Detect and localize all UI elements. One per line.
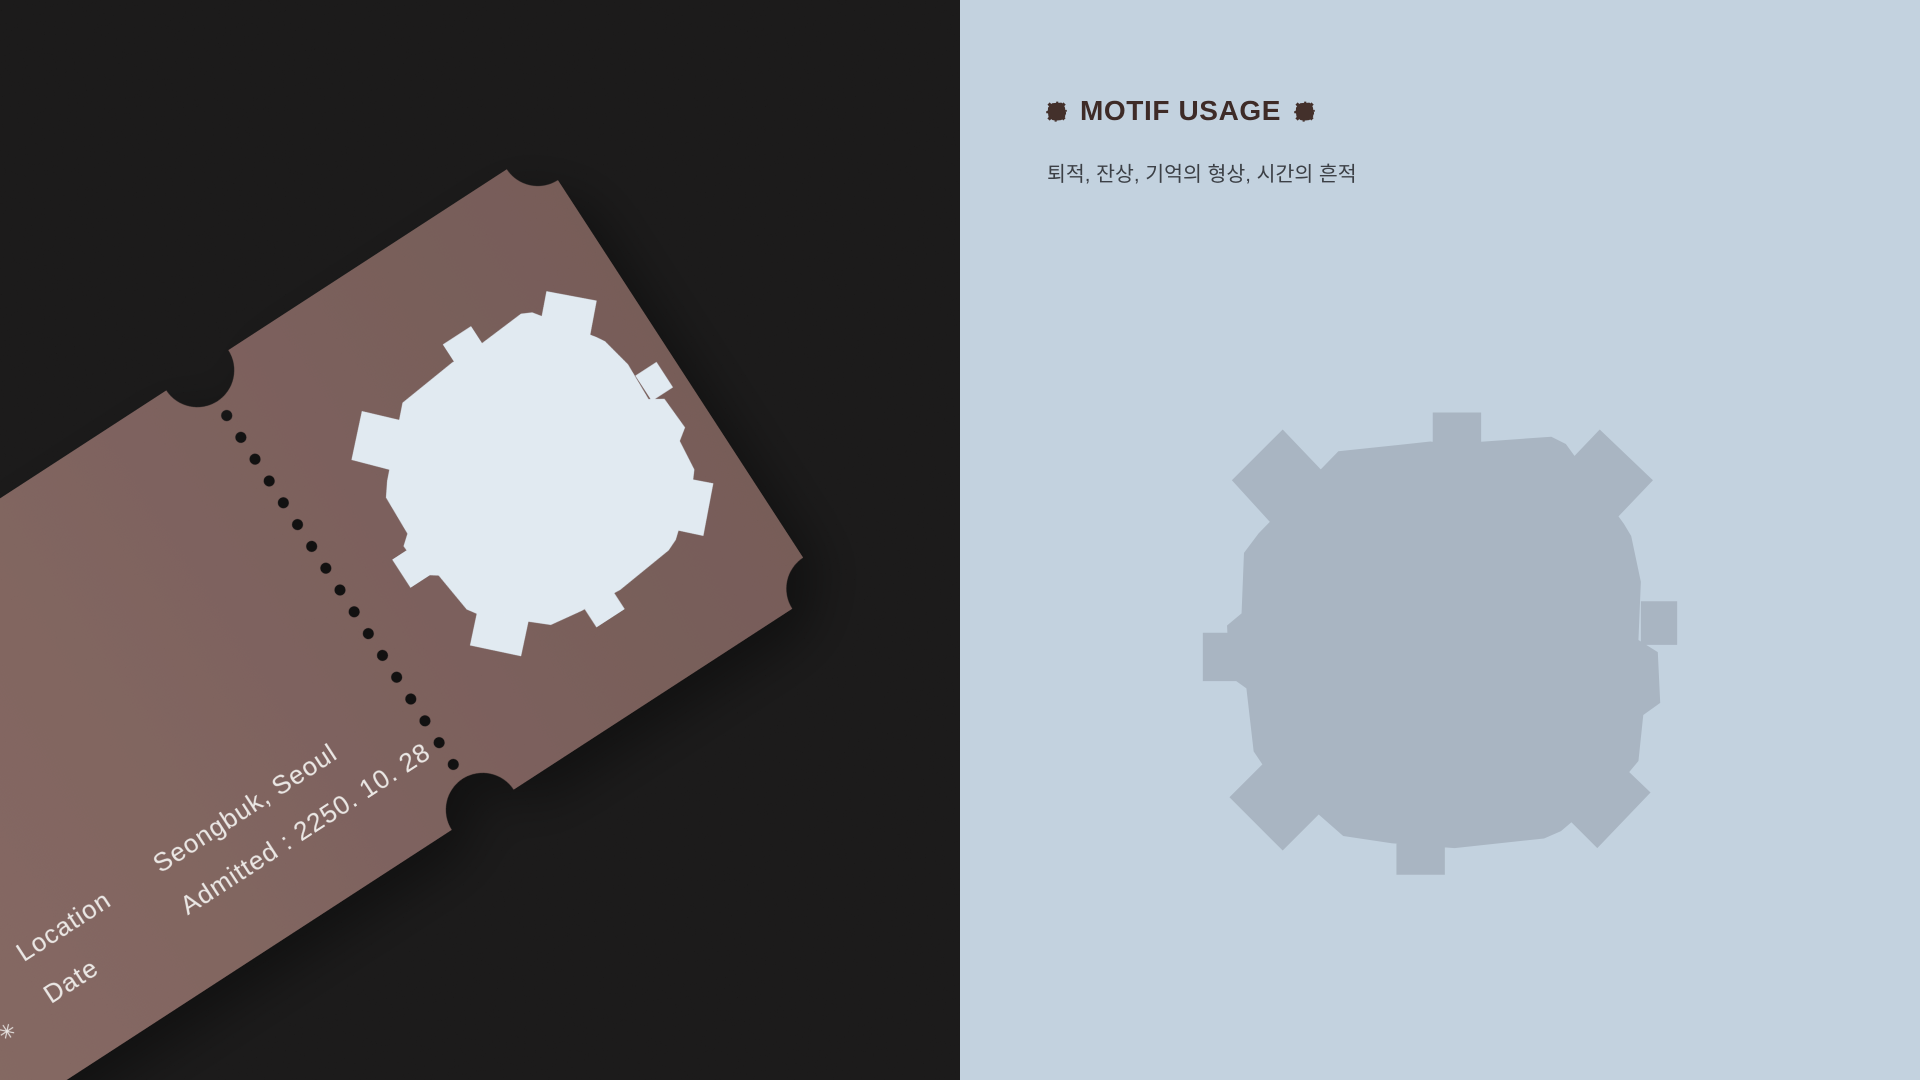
- motif-large-graphic: [1198, 398, 1682, 882]
- section-subtitle: 퇴적, 잔상, 기억의 형상, 시간의 흔적: [1047, 160, 1357, 190]
- motif-bullet-icon: [1046, 101, 1067, 122]
- grain-overlay: [0, 0, 960, 1080]
- ticket-scene: Location Date Seongbuk, Seoul Admitted :…: [0, 0, 960, 1080]
- section-title: MOTIF USAGE: [1080, 97, 1281, 125]
- ticket-mockup-panel: Location Date Seongbuk, Seoul Admitted :…: [0, 0, 960, 1080]
- motif-usage-panel: MOTIF USAGE 퇴적, 잔상, 기억의 형상, 시간의 흔적: [960, 0, 1920, 1080]
- motif-bullet-icon: [1294, 101, 1315, 122]
- section-heading-row: MOTIF USAGE: [1046, 97, 1315, 125]
